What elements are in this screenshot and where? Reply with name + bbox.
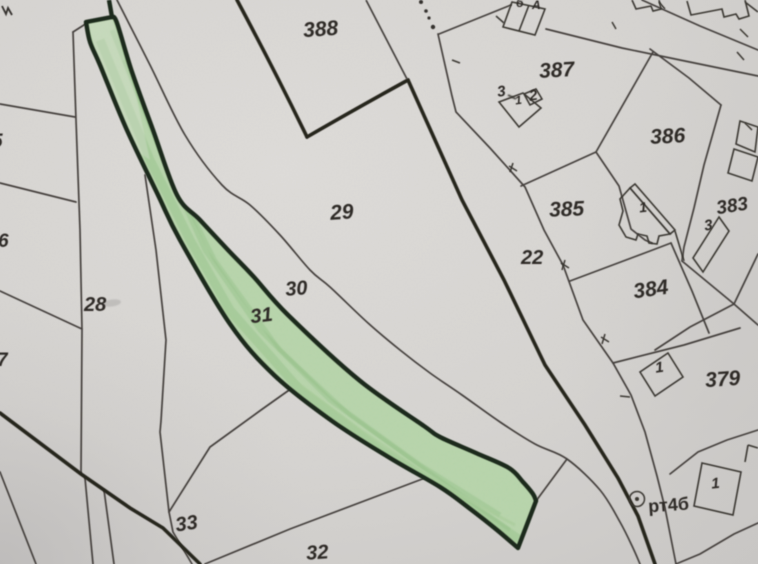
svg-text:5: 5	[0, 131, 3, 152]
svg-text:388: 388	[302, 17, 339, 42]
svg-text:33: 33	[174, 512, 199, 537]
svg-text:22: 22	[520, 247, 543, 269]
svg-text:1: 1	[710, 475, 720, 493]
svg-text:32: 32	[305, 541, 329, 564]
svg-text:379: 379	[704, 367, 741, 392]
svg-text:29: 29	[328, 200, 354, 225]
svg-text:A: A	[531, 0, 541, 12]
svg-text:384: 384	[632, 276, 670, 304]
svg-text:30: 30	[284, 277, 308, 301]
svg-text:385: 385	[549, 197, 585, 221]
svg-text:386: 386	[650, 124, 687, 149]
svg-text:31: 31	[249, 304, 274, 329]
svg-text:387: 387	[539, 58, 577, 83]
svg-text:рт4б: рт4б	[648, 494, 690, 517]
svg-text:28: 28	[83, 294, 107, 316]
svg-text:6: 6	[0, 231, 9, 252]
svg-text:б: б	[516, 0, 524, 10]
